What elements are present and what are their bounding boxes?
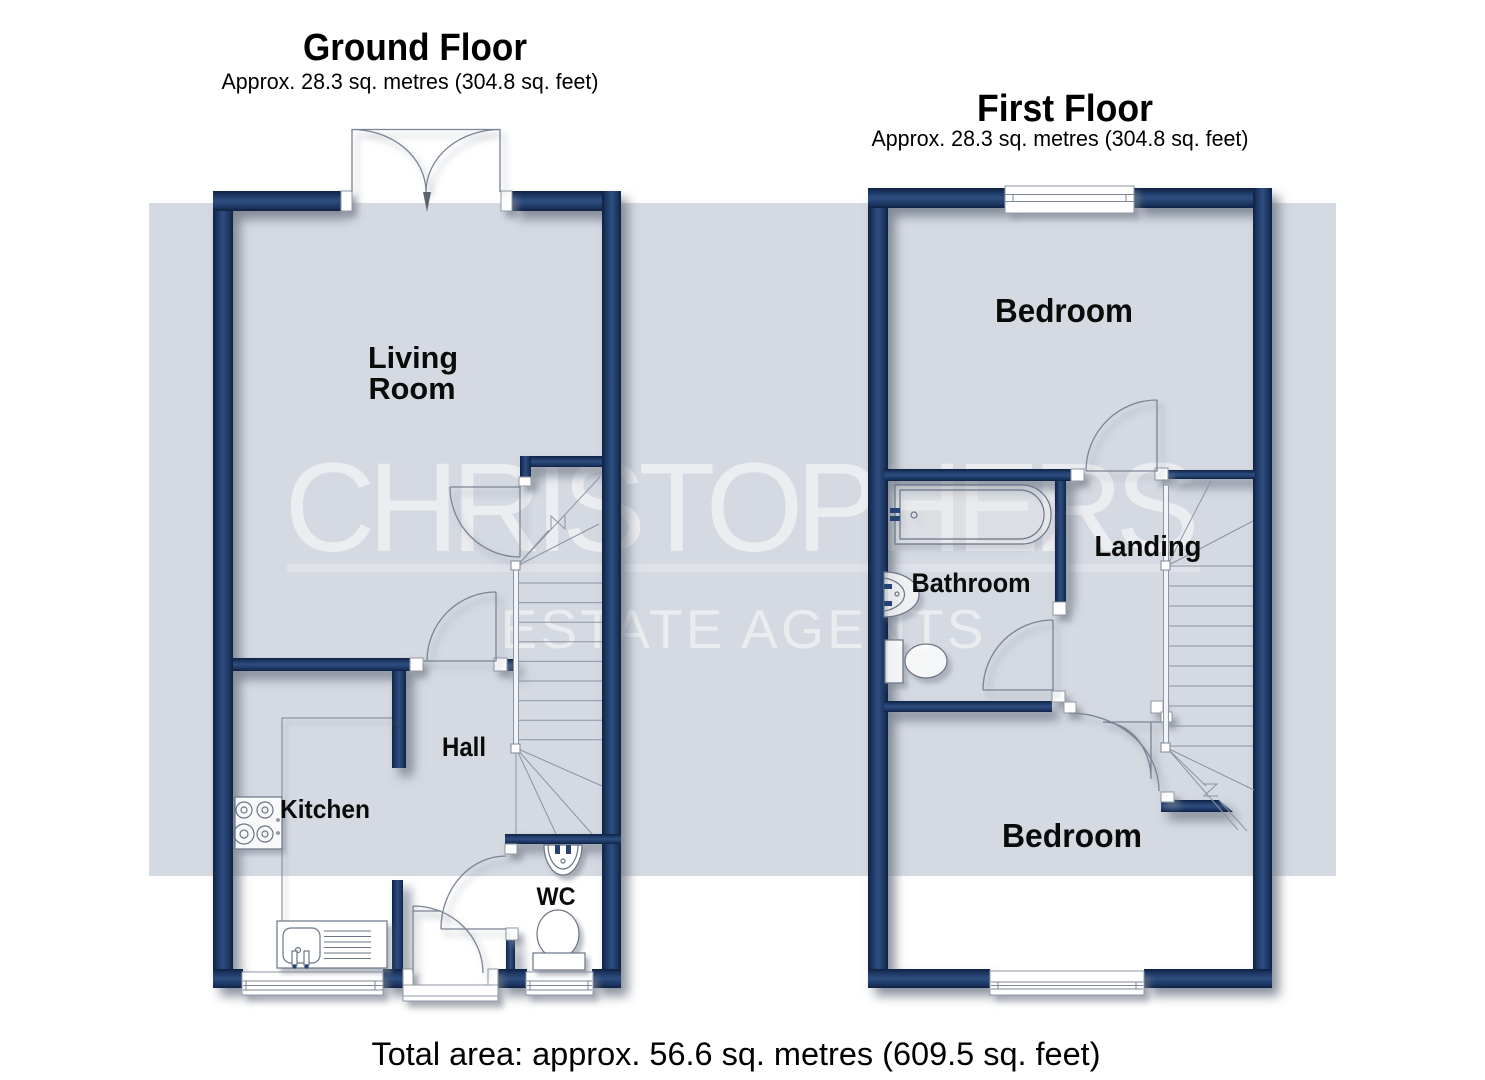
svg-text:Bathroom: Bathroom bbox=[912, 568, 1031, 598]
svg-text:Landing: Landing bbox=[1095, 531, 1202, 563]
svg-text:Ground Floor: Ground Floor bbox=[303, 27, 527, 69]
svg-text:Hall: Hall bbox=[442, 732, 486, 762]
svg-text:Living: Living bbox=[368, 340, 458, 375]
svg-text:Bedroom: Bedroom bbox=[1002, 818, 1142, 855]
svg-text:First Floor: First Floor bbox=[977, 88, 1153, 130]
svg-text:Bedroom: Bedroom bbox=[995, 292, 1133, 329]
svg-text:WC: WC bbox=[537, 883, 576, 911]
svg-text:Total area: approx. 56.6 sq. m: Total area: approx. 56.6 sq. metres (609… bbox=[372, 1036, 1101, 1072]
svg-text:Approx. 28.3 sq. metres (304.8: Approx. 28.3 sq. metres (304.8 sq. feet) bbox=[872, 126, 1249, 151]
svg-text:Approx. 28.3 sq. metres (304.8: Approx. 28.3 sq. metres (304.8 sq. feet) bbox=[222, 69, 599, 94]
svg-text:Room: Room bbox=[369, 371, 456, 406]
svg-text:Kitchen: Kitchen bbox=[280, 794, 370, 824]
